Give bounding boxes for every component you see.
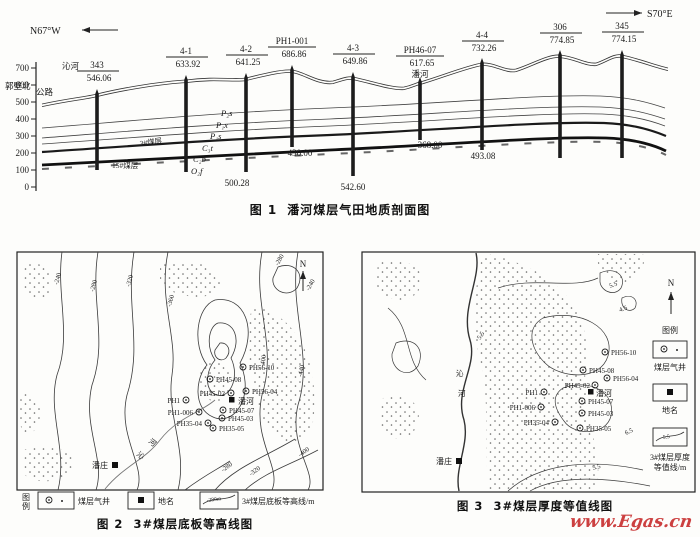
depth-542: 542.60 bbox=[341, 182, 366, 192]
well-label: PH45-02 bbox=[200, 390, 226, 398]
stratum-o2f: O₂f bbox=[191, 166, 204, 176]
fig1-caption-text: 潘河煤层气田地质剖面图 bbox=[287, 203, 430, 217]
well-name: PH46-07 bbox=[404, 45, 437, 55]
well-label: PH56-10 bbox=[611, 349, 637, 357]
legend-well-label: 煤层气井 bbox=[78, 496, 110, 506]
north-label: N bbox=[668, 278, 675, 288]
well-label: PH45-02 bbox=[565, 382, 591, 390]
legend-contour-label: 3#煤层底板等高线/m bbox=[242, 496, 315, 506]
qinhe-river-label: 沁河 bbox=[62, 61, 80, 71]
legend-place-label: 地名 bbox=[158, 496, 174, 506]
direction-left-label: N67°W bbox=[30, 26, 61, 37]
direction-right-label: S70°E bbox=[647, 9, 673, 20]
fig2-caption-number: 图 2 bbox=[97, 517, 124, 531]
fig2-caption-text: 3#煤层底板等高线图 bbox=[133, 517, 253, 531]
panzhuang-town-label: 潘庄 bbox=[92, 460, 108, 470]
well-elev: 774.85 bbox=[550, 35, 575, 45]
strata-labels: P₂s P₁x P₁s C₃t C₂b O₂f 3#煤层 15#煤层 bbox=[112, 108, 233, 176]
contour-label: -360 bbox=[166, 294, 176, 307]
contour-label: -280 bbox=[274, 253, 286, 267]
well-label: PH1 bbox=[168, 397, 181, 405]
well-name: 4-2 bbox=[240, 44, 252, 54]
well-label: PH56-04 bbox=[252, 388, 278, 396]
well-label: PH1-006 bbox=[510, 404, 536, 412]
well-name: 4-1 bbox=[180, 46, 192, 56]
well-label: PH56-04 bbox=[613, 375, 639, 383]
fig1-caption: 图 1潘河煤层气田地质剖面图 bbox=[180, 201, 500, 218]
fig3-north-arrow: N bbox=[668, 278, 675, 314]
axis-tick-0: 0 bbox=[25, 182, 30, 192]
legend-contour-label-1: 3#煤层厚度 bbox=[650, 452, 690, 462]
well-name: 345 bbox=[615, 21, 629, 31]
fig2-caption: 图 23#煤层底板等高线图 bbox=[60, 516, 290, 532]
fig3-contour-map: 5.5 4.5 6.5 5.5 5.5 PH56-10 PH45-08 PH45… bbox=[358, 248, 700, 506]
axis-tick-500: 500 bbox=[16, 97, 30, 107]
legend-title-2: 例 bbox=[22, 501, 30, 511]
fig2-wells: PH56-10 PH45-08 PH45-02 PH56-04 潘河 PH45-… bbox=[92, 364, 278, 470]
legend-place-label: 地名 bbox=[662, 405, 678, 415]
contour-label: -280 bbox=[89, 279, 99, 292]
contour-label: -320 bbox=[125, 274, 135, 287]
arrow-right-icon bbox=[606, 10, 642, 16]
legend-title-1: 图 bbox=[22, 493, 30, 502]
panhe-town-label: 潘河 bbox=[411, 69, 429, 79]
fig3-legend: 图例 煤层气井 地名 5.5 3#煤层厚度 等值线/m bbox=[650, 325, 690, 472]
well-label: PH45-03 bbox=[588, 410, 614, 418]
well-elev: 686.86 bbox=[282, 49, 307, 59]
well-name: 343 bbox=[90, 60, 104, 70]
well-label: PH45-08 bbox=[216, 376, 242, 384]
river-char: 沁 bbox=[456, 368, 464, 378]
well-label: PH35-05 bbox=[219, 425, 245, 433]
highway-label: 公路 bbox=[36, 87, 54, 97]
well-label: PH56-10 bbox=[249, 364, 275, 372]
well-label: PH35-04 bbox=[177, 420, 203, 428]
stratum-p2s: P₂s bbox=[220, 108, 233, 118]
depth-493: 493.08 bbox=[471, 151, 496, 161]
contour-label: -240 bbox=[53, 272, 63, 285]
depth-430: 430.00 bbox=[288, 148, 313, 158]
stratum-c2b: C₂b bbox=[193, 154, 206, 164]
well-elev: 774.15 bbox=[612, 34, 637, 44]
well-label: PH1-006 bbox=[168, 409, 194, 417]
axis-tick-200: 200 bbox=[16, 148, 30, 158]
well-elev: 641.25 bbox=[236, 57, 261, 67]
axis-tick-400: 400 bbox=[16, 114, 30, 124]
panhe-town-label: 潘河 bbox=[596, 388, 612, 398]
well-name: 4-3 bbox=[347, 43, 359, 53]
well-name: PH1-001 bbox=[276, 36, 309, 46]
legend-contour-sample: -280m bbox=[206, 496, 222, 504]
contour-label: -240 bbox=[305, 278, 317, 292]
depth-368: 368.00 bbox=[418, 140, 443, 150]
well-elev: 649.86 bbox=[343, 56, 368, 66]
fig1-cross-section: N67°W S70°E 700 600 500 400 300 200 bbox=[0, 0, 700, 200]
fig2-legend: 图 例 煤层气井 地名 -280m 3#煤层底板等高线/m bbox=[22, 492, 315, 511]
north-label: N bbox=[300, 259, 307, 269]
contour-label: -280 bbox=[220, 461, 234, 474]
well-label: PH35-05 bbox=[586, 425, 612, 433]
well-name: 4-4 bbox=[476, 30, 488, 40]
well-label: PH35-04 bbox=[524, 419, 550, 427]
river-char: 河 bbox=[147, 437, 159, 449]
well-label: PH1 bbox=[526, 389, 539, 397]
axis-tick-100: 100 bbox=[16, 165, 30, 175]
guobibei-label: 郭壁北 bbox=[5, 81, 31, 91]
stratum-c3t: C₃t bbox=[202, 143, 214, 153]
fig1-caption-number: 图 1 bbox=[250, 203, 278, 217]
panhe-town-label: 潘河 bbox=[238, 396, 254, 406]
watermark: www.Egas.cn bbox=[568, 512, 693, 532]
contour-label: -320 bbox=[248, 465, 262, 478]
well-elev: 546.06 bbox=[87, 73, 112, 83]
axis-tick-700: 700 bbox=[16, 63, 30, 73]
panzhuang-town-label: 潘庄 bbox=[436, 456, 452, 466]
legend-well-label: 煤层气井 bbox=[654, 362, 686, 372]
well-label: PH45-08 bbox=[589, 367, 615, 375]
fig3-caption-number: 图 3 bbox=[457, 499, 484, 513]
fig3-caption-text: 3#煤层厚度等值线图 bbox=[493, 499, 613, 513]
well-elev: 617.65 bbox=[410, 58, 435, 68]
contour-label: 4.5 bbox=[618, 305, 628, 314]
river-char: 沁 bbox=[135, 449, 148, 462]
legend-contour-label-2: 等值线/m bbox=[654, 462, 687, 472]
contour-label: 6.5 bbox=[624, 427, 634, 437]
depth-500: 500.28 bbox=[225, 178, 250, 188]
paper-page: N67°W S70°E 700 600 500 400 300 200 bbox=[0, 0, 700, 537]
fig2-contour-map: -240 -280 -320 -360 -400 -440 -280 -240 … bbox=[10, 245, 345, 537]
arrow-left-icon bbox=[82, 27, 118, 33]
well-label: PH45-07 bbox=[229, 407, 255, 415]
well-label: PH45-03 bbox=[228, 415, 254, 423]
well-name: 306 bbox=[553, 22, 567, 32]
stratum-p1s: P₁s bbox=[209, 131, 222, 141]
legend-title: 图例 bbox=[662, 325, 678, 335]
stratum-p1x: P₁x bbox=[215, 120, 228, 130]
well-label: PH45-07 bbox=[588, 398, 614, 406]
river-char: 河 bbox=[458, 389, 466, 398]
axis-tick-300: 300 bbox=[16, 131, 30, 141]
coal-seam-15-label: 15#煤层 bbox=[112, 160, 139, 170]
legend-contour-sample: 5.5 bbox=[662, 434, 670, 441]
well-elev: 633.92 bbox=[176, 59, 201, 69]
well-elev: 732.26 bbox=[472, 43, 497, 53]
